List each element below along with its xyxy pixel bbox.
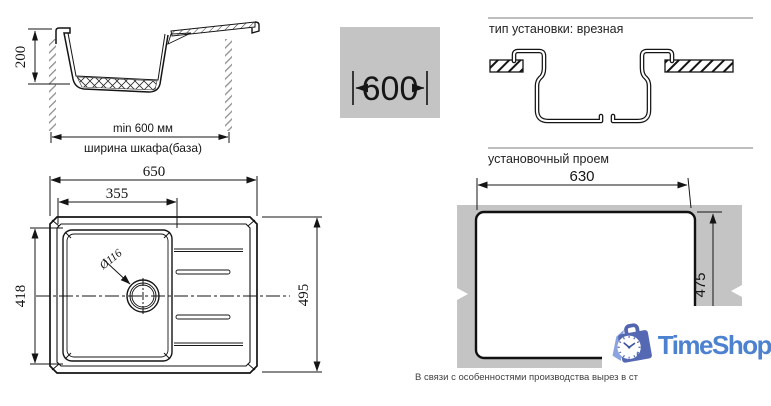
dim-opening-width-630: 630: [477, 168, 691, 210]
overall-height-label: 495: [296, 284, 312, 307]
countertop-left: [490, 60, 523, 72]
top-view-drawing: Ø116 650 355 418 495: [10, 162, 332, 406]
production-footnote: В связи с особенностями производства выр…: [415, 372, 638, 383]
cabinet-wall-right: [225, 39, 232, 131]
opening-height-label: 475: [692, 272, 709, 297]
dim-overall-height-495: 495: [262, 217, 322, 372]
overall-width-label: 650: [143, 164, 166, 180]
side-view-drawing: 200 min 600 мм ширина шкафа(база): [0, 0, 300, 160]
opening-title: установочный проем: [488, 152, 609, 166]
install-type-title: тип установки: врезная: [489, 22, 623, 36]
dim-bowl-width-355: 355: [58, 186, 177, 228]
bowl-height-label: 418: [13, 285, 29, 308]
countertop-right: [665, 60, 733, 72]
dim-depth-200: 200: [13, 29, 70, 84]
diagram-page: 200 min 600 мм ширина шкафа(база) 600: [0, 0, 771, 406]
cabinet-width-box-drawing: 600: [340, 27, 440, 118]
drain-diameter-label: Ø116: [97, 247, 125, 273]
depth-dimension-label: 200: [13, 46, 29, 69]
logo-wordmark: TimeShop: [658, 332, 771, 358]
opening-width-label: 630: [569, 168, 594, 185]
clock-bag-icon: [611, 312, 658, 378]
drainboard: [174, 249, 243, 346]
cabinet-width-box: 600: [340, 27, 440, 118]
dim-overall-width-650: 650: [50, 164, 257, 216]
cabinet-600-label: 600: [362, 70, 419, 108]
inset-mount-cross-section: [490, 51, 733, 121]
cabinet-wall-left: [49, 39, 56, 131]
dim-cabinet-width: min 600 мм ширина шкафа(база): [51, 123, 229, 155]
bowl-width-label: 355: [106, 186, 129, 202]
sink-outline: [50, 217, 257, 373]
cabinet-width-label: ширина шкафа(база): [84, 141, 202, 155]
dim-drain-diameter: Ø116: [97, 247, 130, 284]
install-type-section: тип установки: врезная: [488, 12, 758, 152]
drainboard-surface: [171, 22, 255, 36]
min-width-label: min 600 мм: [113, 123, 173, 135]
